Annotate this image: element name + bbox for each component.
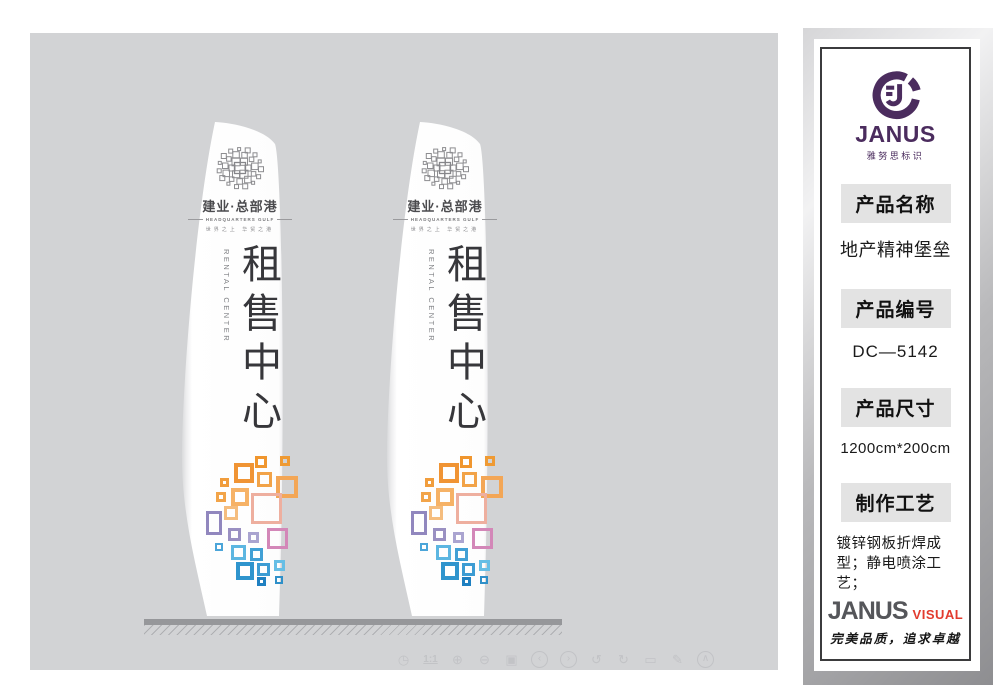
deco-square	[436, 545, 451, 560]
deco-square	[480, 576, 488, 584]
deco-square	[255, 456, 267, 468]
brand-emblem-icon	[213, 145, 267, 193]
deco-square	[462, 563, 475, 576]
zoom-in-icon[interactable]: ⊕	[450, 652, 465, 668]
brand-block: 建业·总部港 HEADQUARTERS GULF 世界之上 华贸之港	[393, 145, 497, 233]
viewer-toolbar: ◷1:1⊕⊖▣‹›↺↻▭✎∧	[396, 651, 714, 668]
deco-square	[206, 511, 222, 535]
deco-square	[485, 456, 495, 466]
craft-value: 镀锌钢板折焊成型；静电喷涂工艺；	[837, 534, 955, 594]
deco-square	[228, 528, 241, 541]
deco-square	[453, 532, 464, 543]
actual-size-label[interactable]: 1:1	[423, 652, 438, 668]
deco-square	[456, 493, 487, 524]
deco-square	[231, 488, 249, 506]
deco-square	[441, 562, 459, 580]
deco-square	[433, 528, 446, 541]
deco-square	[224, 506, 238, 520]
edit-icon[interactable]: ✎	[670, 652, 685, 668]
deco-square	[216, 492, 226, 502]
deco-square	[429, 506, 443, 520]
redo-icon[interactable]: ↻	[616, 652, 631, 668]
deco-square	[439, 463, 459, 483]
deco-square	[420, 543, 428, 551]
sign-title-english: RENTAL CENTER	[427, 249, 436, 343]
deco-square	[411, 511, 427, 535]
sign-title-chinese: 租售中心	[238, 243, 278, 439]
deco-square	[257, 563, 270, 576]
deco-square	[236, 562, 254, 580]
product-info-panel: JANUS 雅努思标识 产品名称 地产精神堡垒 产品编号 DC—5142 产品尺…	[803, 28, 993, 685]
deco-square	[462, 577, 471, 586]
product-size-header: 产品尺寸	[841, 388, 951, 427]
deco-square	[455, 548, 468, 561]
deco-square	[421, 492, 431, 502]
brand-subtitle-row: HEADQUARTERS GULF	[393, 217, 498, 222]
brand-subtitle: HEADQUARTERS GULF	[411, 217, 480, 222]
janus-brand-name: JANUS	[855, 121, 935, 148]
deco-square	[460, 456, 472, 468]
deco-square	[472, 528, 493, 549]
deco-squares-cluster	[188, 445, 298, 600]
totem-sign-left: 建业·总部港 HEADQUARTERS GULF 世界之上 华贸之港 RENTA…	[180, 119, 290, 619]
janus-brand-subtitle: 雅努思标识	[867, 149, 925, 162]
deco-square	[275, 576, 283, 584]
brand-subtitle: HEADQUARTERS GULF	[206, 217, 275, 222]
collapse-icon[interactable]: ∧	[697, 651, 714, 668]
brand-block: 建业·总部港 HEADQUARTERS GULF 世界之上 华贸之港	[188, 145, 292, 233]
deco-square	[215, 543, 223, 551]
next-icon[interactable]: ›	[560, 651, 577, 668]
brand-tagline: 世界之上 华贸之港	[206, 226, 274, 233]
deco-square	[280, 456, 290, 466]
prev-icon[interactable]: ‹	[531, 651, 548, 668]
sign-title-english: RENTAL CENTER	[222, 249, 231, 343]
brand-name: 建业·总部港	[202, 196, 277, 215]
deco-square	[436, 488, 454, 506]
totem-sign-right: 建业·总部港 HEADQUARTERS GULF 世界之上 华贸之港 RENTA…	[385, 119, 495, 619]
product-name-header: 产品名称	[841, 184, 951, 223]
sign-title-chinese: 租售中心	[443, 243, 483, 439]
panel-footer: JANUS VISUAL 完美品质，追求卓越	[828, 597, 963, 647]
deco-square	[257, 577, 266, 586]
ground-hatching	[144, 625, 562, 635]
deco-square	[274, 560, 285, 571]
product-code-value: DC—5142	[852, 342, 938, 362]
brand-emblem-icon	[418, 145, 472, 193]
deco-squares-cluster	[393, 445, 503, 600]
craft-header: 制作工艺	[841, 483, 951, 522]
brand-subtitle-row: HEADQUARTERS GULF	[188, 217, 293, 222]
deco-square	[267, 528, 288, 549]
deco-square	[251, 493, 282, 524]
undo-icon[interactable]: ↺	[589, 652, 604, 668]
deco-square	[257, 472, 272, 487]
deco-square	[234, 463, 254, 483]
janus-logo-icon	[869, 67, 923, 121]
deco-square	[479, 560, 490, 571]
product-code-header: 产品编号	[841, 289, 951, 328]
product-name-value: 地产精神堡垒	[840, 236, 951, 262]
product-info-inner-frame: JANUS 雅努思标识 产品名称 地产精神堡垒 产品编号 DC—5142 产品尺…	[820, 47, 971, 661]
deco-square	[250, 548, 263, 561]
deco-square	[231, 545, 246, 560]
trash-icon[interactable]: ▭	[643, 652, 658, 668]
brand-tagline: 世界之上 华贸之港	[411, 226, 479, 233]
image-frame-icon[interactable]: ▣	[504, 652, 519, 668]
zoom-out-icon[interactable]: ⊖	[477, 652, 492, 668]
deco-square	[220, 478, 229, 487]
footer-slogan: 完美品质，追求卓越	[830, 628, 961, 647]
product-size-value: 1200cm*200cm	[840, 440, 950, 457]
design-preview-canvas: 建业·总部港 HEADQUARTERS GULF 世界之上 华贸之港 RENTA…	[30, 33, 778, 670]
clock-icon[interactable]: ◷	[396, 652, 411, 668]
brand-name: 建业·总部港	[407, 196, 482, 215]
deco-square	[425, 478, 434, 487]
deco-square	[248, 532, 259, 543]
footer-brand-accent: VISUAL	[913, 607, 964, 622]
deco-square	[462, 472, 477, 487]
footer-brand: JANUS	[828, 597, 908, 626]
